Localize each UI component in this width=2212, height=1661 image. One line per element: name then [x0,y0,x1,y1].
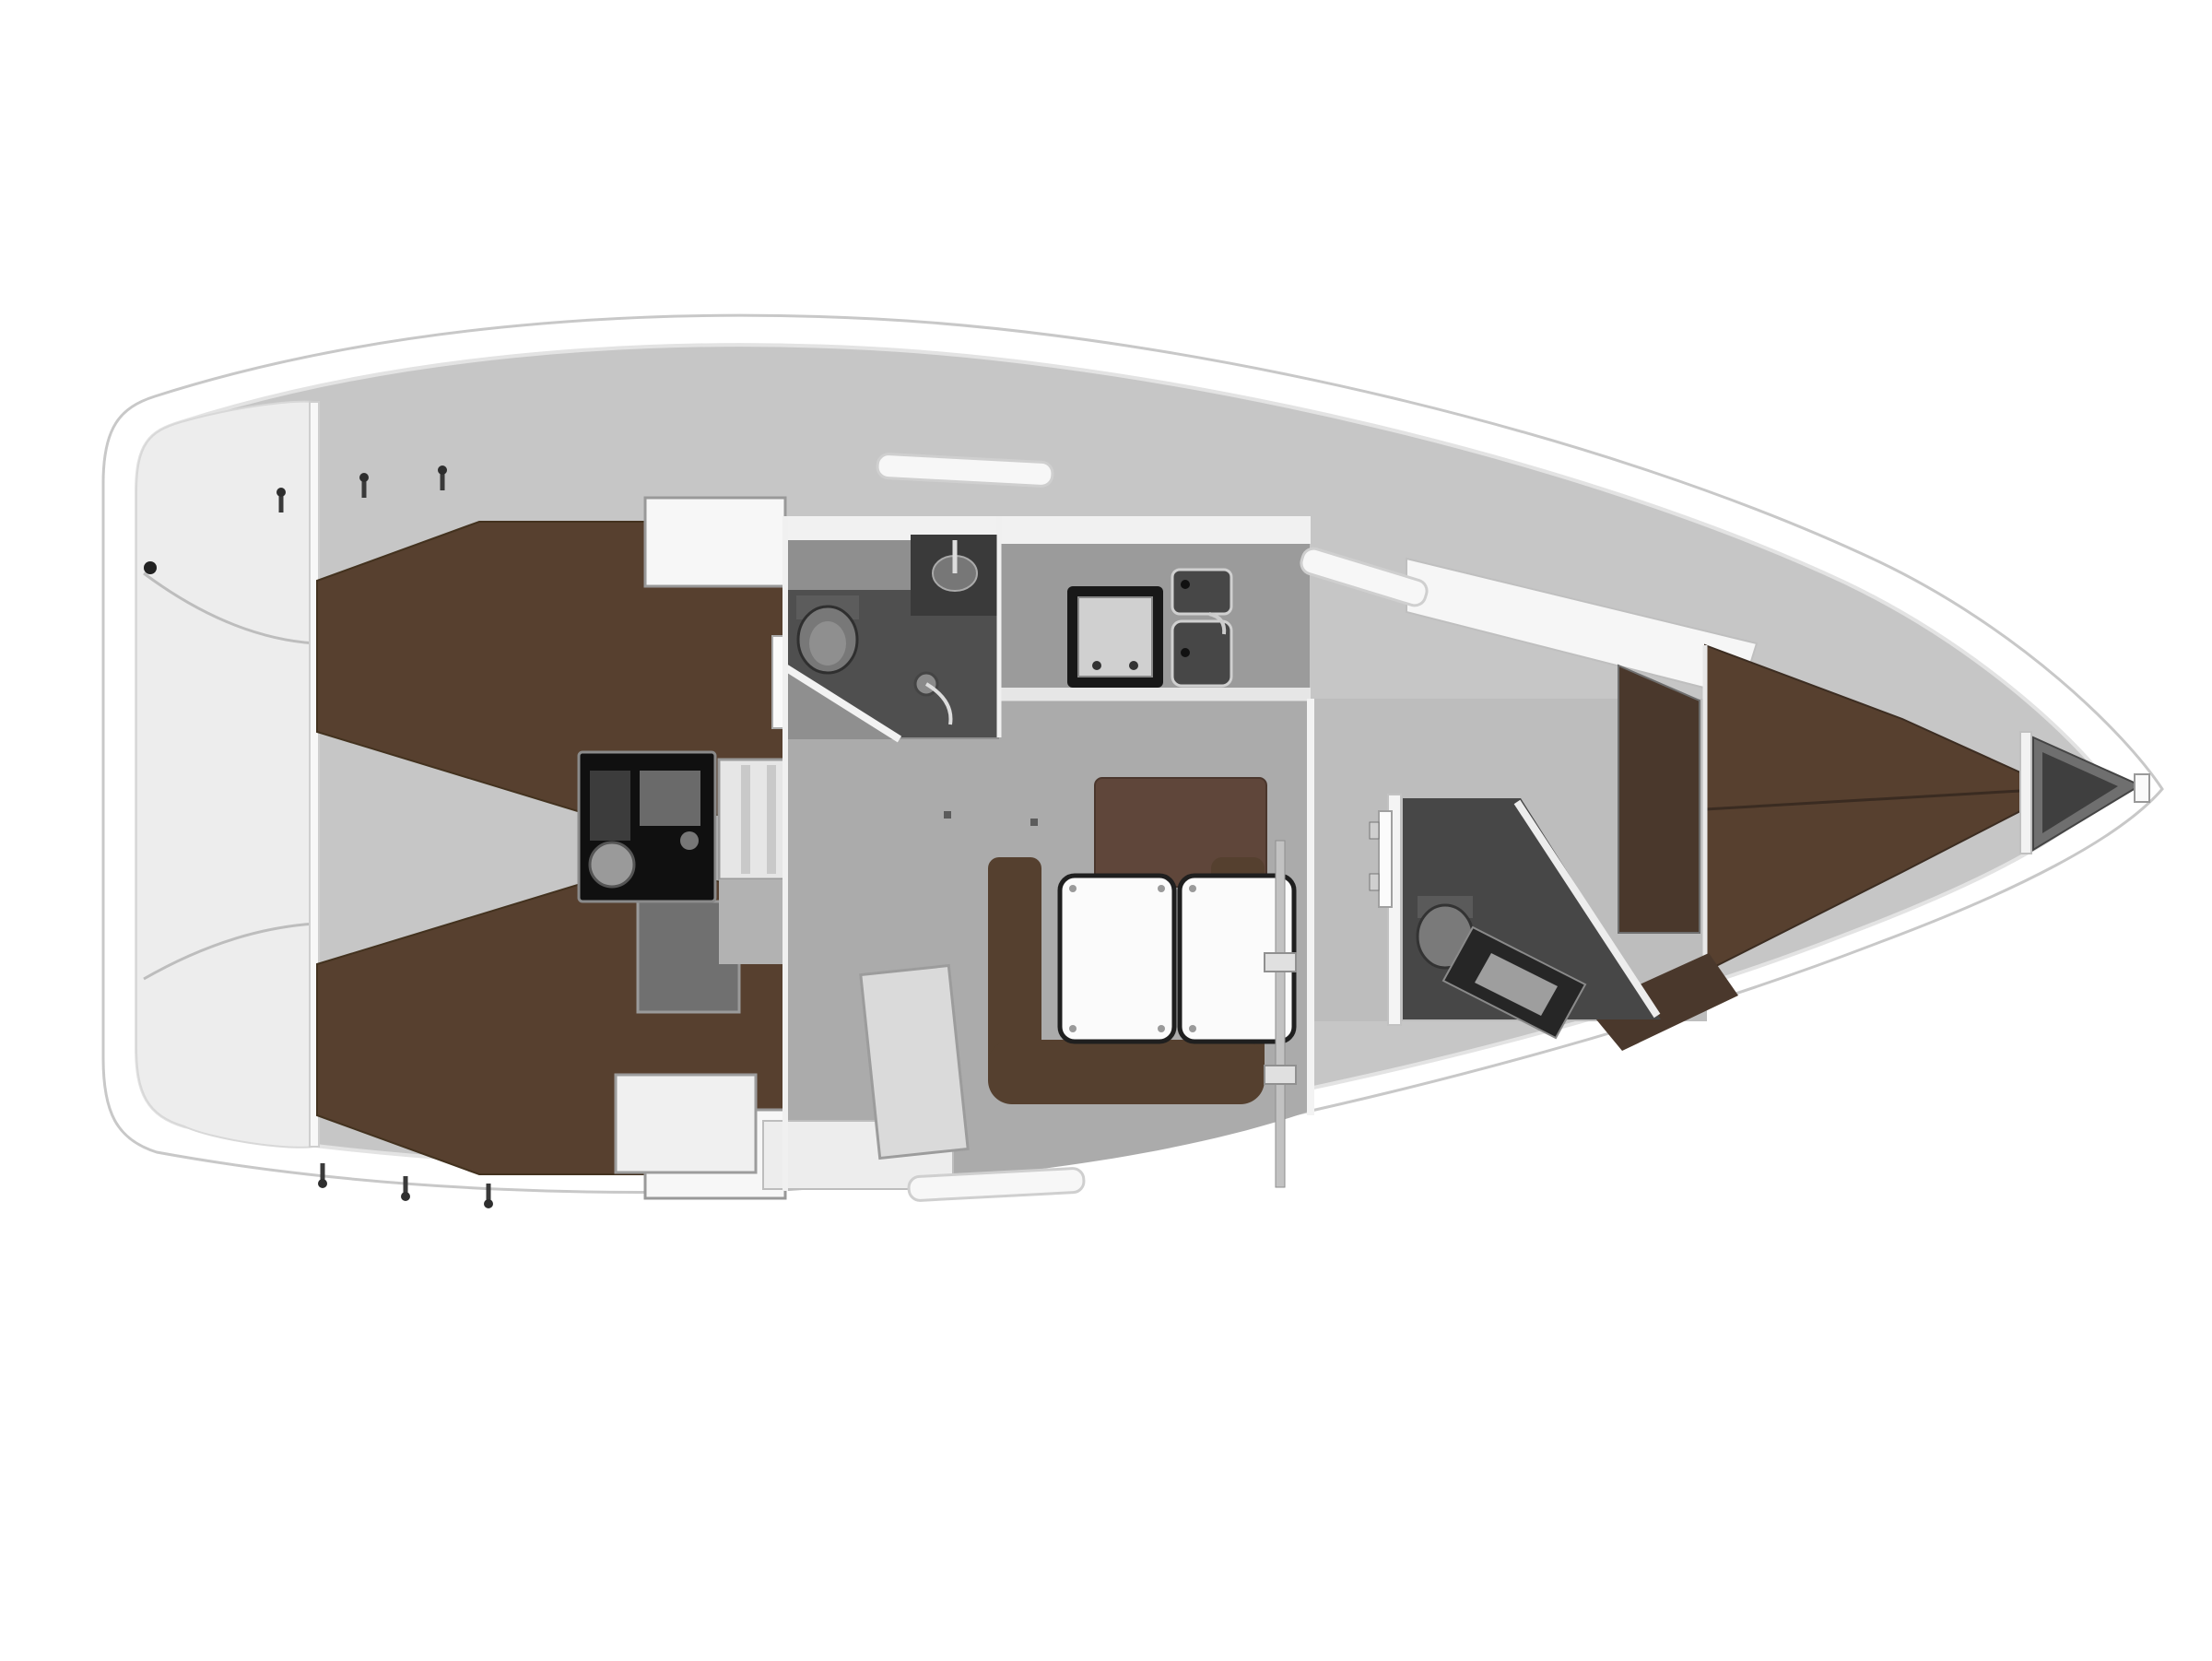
nav-seat-box [616,1075,756,1172]
stove-top [1078,597,1152,677]
steps-landing [719,879,785,964]
sink-drain [1181,648,1190,657]
support-post [1276,841,1285,1187]
engine-mount [590,771,630,841]
galley-fiddle-rail [999,688,1311,701]
engine-filter [680,831,699,850]
post-bracket [1265,953,1296,972]
sink-drain [1181,580,1190,589]
engine-block [640,771,700,826]
settee-bottom [988,1040,1265,1104]
bow-bulkhead [2020,732,2031,854]
step-tread [767,765,776,874]
fwd-head-door [1379,811,1392,907]
head-aft [785,516,999,739]
floor-plan-stage [0,0,2212,1661]
locker-port-aft [645,498,785,586]
hanging-locker [1618,666,1700,933]
transom-fitting [144,561,157,574]
table-leaf-left [1060,876,1174,1042]
nav-cabinet [861,966,968,1159]
post-bracket [1265,1066,1296,1084]
step-tread [741,765,750,874]
galley [999,516,1311,701]
bow-fitting [2135,774,2149,802]
toilet-seat [809,621,846,666]
stove-knob [1092,661,1101,670]
galley-counter-top [999,516,1311,544]
sink-upper [1172,570,1231,614]
door-hinge [1370,822,1379,839]
stern-platform [136,402,319,1148]
yacht-floor-plan [0,0,2212,1661]
engine-compartment [579,752,715,901]
engine-pulley [590,842,634,887]
ceiling-dot [1030,819,1038,826]
stove-knob [1129,661,1138,670]
door-hinge [1370,874,1379,890]
ceiling-dot [944,811,951,819]
salon [785,701,1311,1191]
transom-area [136,402,313,1148]
